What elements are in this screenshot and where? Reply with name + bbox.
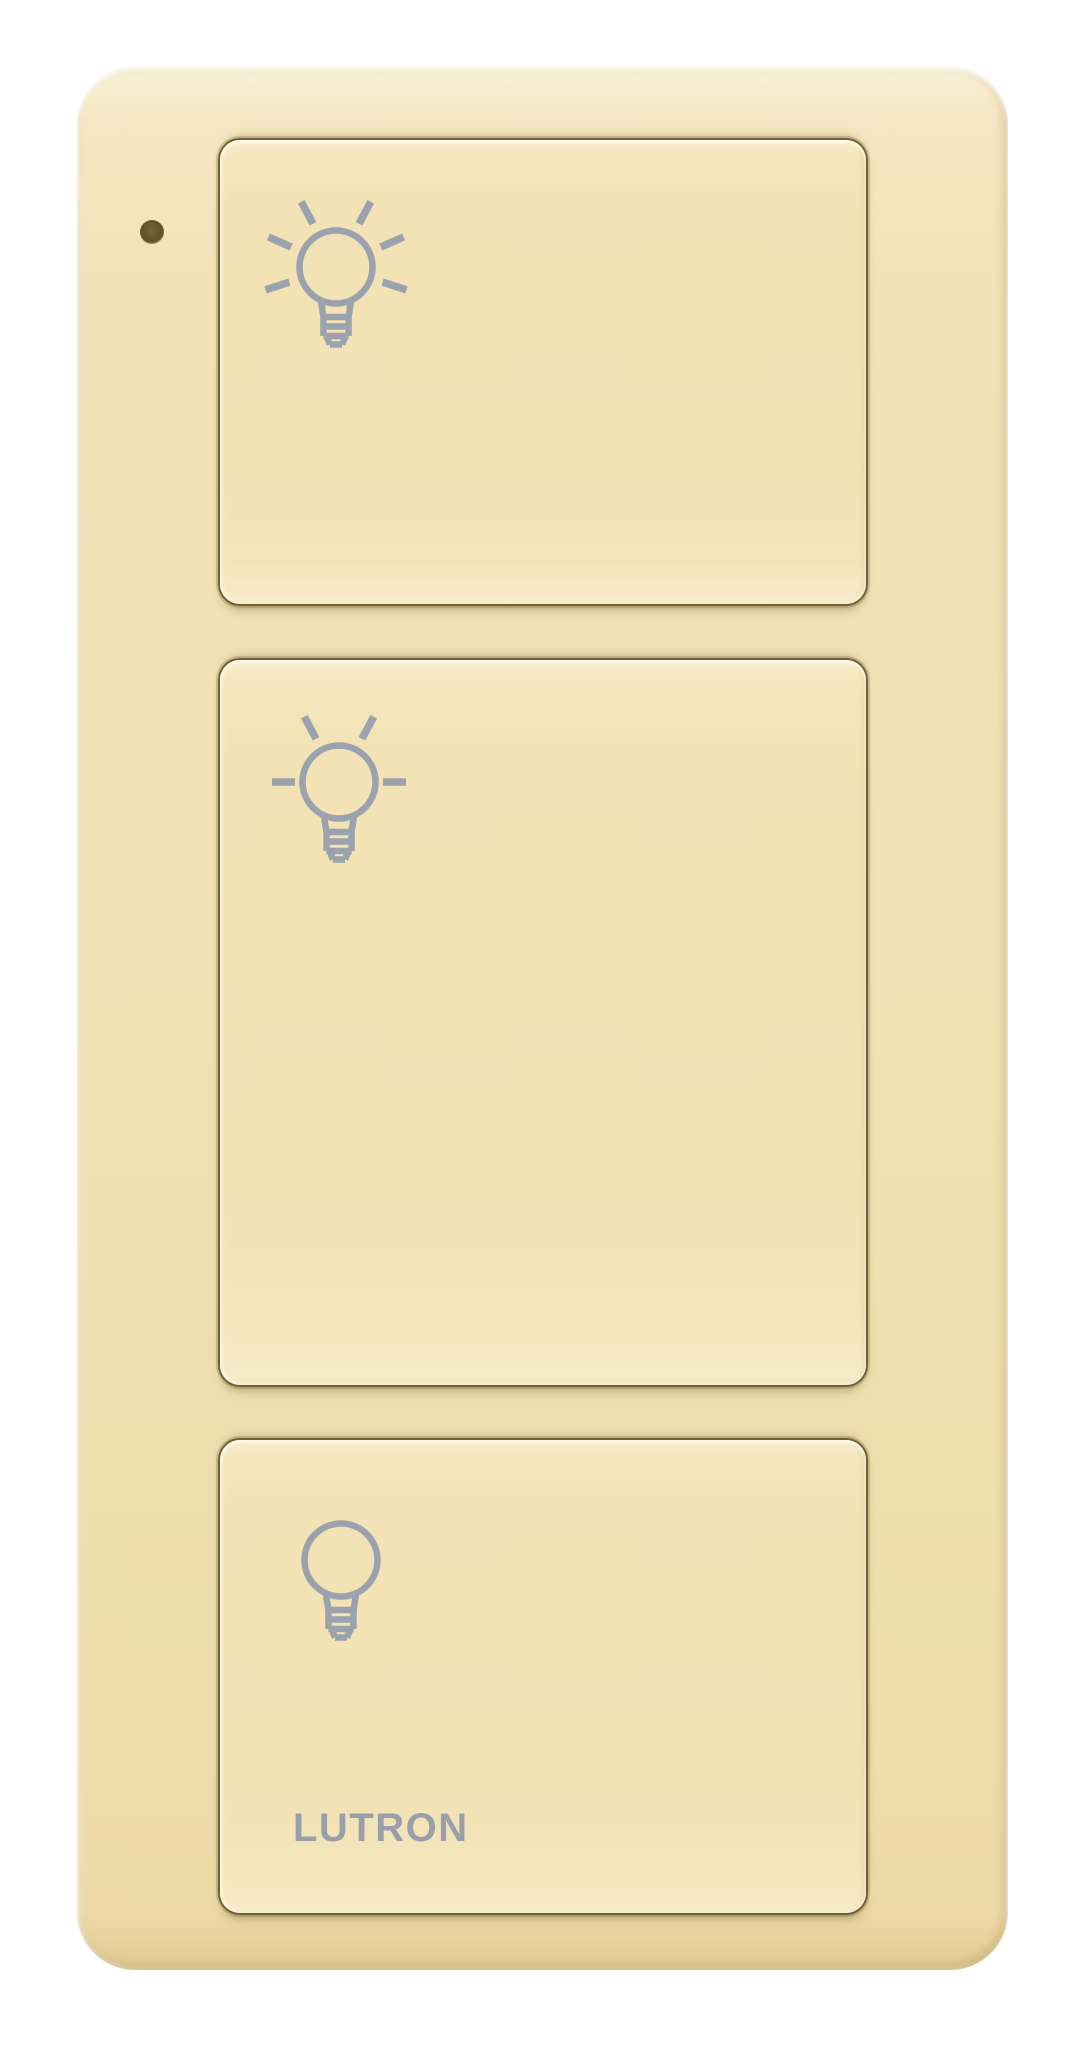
pico-remote-body: LUTRON <box>77 66 1008 1970</box>
light-on-button[interactable] <box>220 140 866 604</box>
light-off-button[interactable]: LUTRON <box>220 1440 866 1913</box>
product-photo: LUTRON <box>0 0 1085 2048</box>
light-off-icon <box>261 1488 421 1658</box>
status-led <box>140 220 164 244</box>
light-on-icon <box>256 195 416 365</box>
brand-logo: LUTRON <box>293 1808 469 1848</box>
favorite-preset-icon <box>259 710 419 880</box>
favorite-preset-button[interactable] <box>220 660 866 1385</box>
